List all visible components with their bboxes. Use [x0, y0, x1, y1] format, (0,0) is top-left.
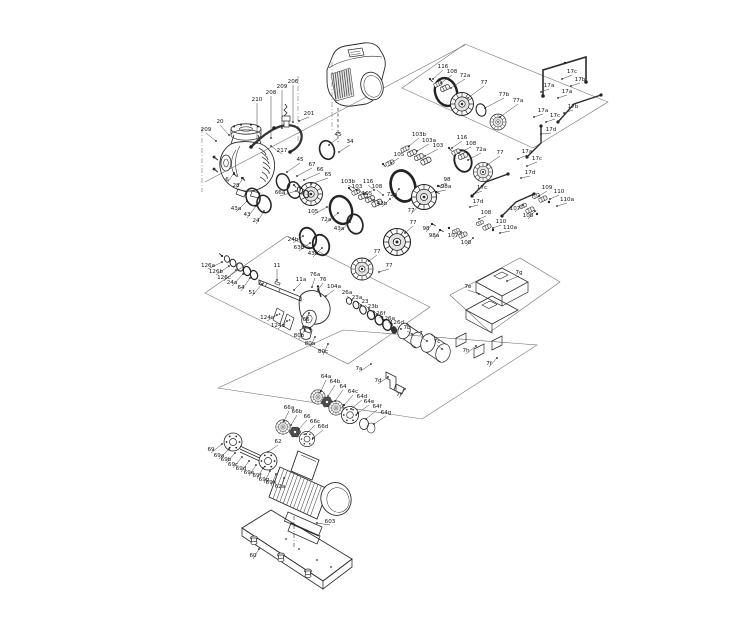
leader-line	[479, 216, 486, 219]
leader-line	[425, 149, 438, 156]
leader-dot	[557, 97, 559, 99]
part-label: 72a	[460, 73, 471, 79]
leader-dot	[357, 412, 359, 414]
part-label: 43a	[334, 226, 345, 232]
part-label: 17c	[477, 185, 487, 191]
leader-line	[541, 133, 551, 134]
leader-dot	[258, 548, 260, 550]
leader-line	[493, 225, 501, 228]
leader-dot	[492, 227, 494, 229]
leader-dot	[310, 183, 312, 185]
leader-line	[487, 156, 500, 165]
leader-line	[268, 445, 278, 452]
leader-line	[220, 125, 229, 135]
leader-dot	[475, 345, 477, 347]
part-label: 66a	[275, 190, 286, 196]
part-label: 126d	[390, 320, 405, 326]
chassis-parts	[456, 268, 528, 358]
leader-dot	[276, 279, 278, 281]
leader-line	[534, 114, 543, 117]
part-label: 77	[373, 249, 381, 255]
leader-line	[468, 86, 484, 98]
leader-dot	[556, 205, 558, 207]
leader-dot	[248, 460, 250, 462]
part-label: 17b	[568, 104, 579, 110]
leader-line	[311, 178, 328, 184]
part-label: 80b	[294, 333, 305, 339]
part-label: 26a	[342, 290, 353, 296]
leader-dot	[441, 348, 443, 350]
part-label: 107	[510, 206, 521, 212]
part-label: 108	[372, 184, 383, 190]
leader-dot	[432, 78, 434, 80]
leader-dot	[302, 235, 304, 237]
leader-dot	[373, 199, 375, 201]
part-label: 98	[422, 226, 430, 232]
leader-line	[287, 163, 300, 172]
leader-line	[312, 278, 315, 287]
part-label: 206	[288, 79, 299, 85]
leader-dot	[343, 404, 345, 406]
leader-dot	[389, 198, 391, 200]
leader-dot	[256, 142, 258, 144]
part-label: 67	[308, 162, 316, 168]
part-label: 17a	[562, 89, 573, 95]
leader-dot	[241, 456, 243, 458]
part-label: 7a	[356, 366, 363, 372]
leader-dot	[334, 400, 336, 402]
leader-dot	[540, 133, 542, 135]
leader-dot	[419, 203, 421, 205]
leader-line	[521, 176, 530, 178]
part-label: 105	[362, 191, 373, 197]
leader-dot	[540, 91, 542, 93]
leader-dot	[255, 464, 257, 466]
leader-dot	[296, 175, 298, 177]
leader-line	[436, 190, 446, 192]
part-label: 62a	[275, 484, 286, 490]
leader-dot	[337, 212, 339, 214]
valve-spring	[284, 104, 287, 116]
leader-dot	[325, 295, 327, 297]
part-label: 45	[296, 157, 304, 163]
part-label: 76	[319, 277, 327, 283]
part-label: 17a	[544, 83, 555, 89]
part-label: 28	[232, 183, 240, 189]
leader-dot	[275, 473, 277, 475]
leader-dot	[533, 116, 535, 118]
leader-dot	[276, 314, 278, 316]
leader-dot	[440, 82, 442, 84]
leader-dot	[400, 328, 402, 330]
leader-dot	[233, 172, 235, 174]
leader-dot	[496, 357, 498, 359]
leader-dot	[312, 437, 314, 439]
seal-stacks	[293, 78, 469, 232]
part-label: 72a	[387, 192, 398, 198]
leader-line	[291, 415, 297, 425]
part-label: 110	[554, 189, 565, 195]
part-label: 72a	[321, 217, 332, 223]
motor-foot-bracket	[285, 512, 323, 544]
part-label: 66	[302, 317, 310, 323]
leader-line	[374, 416, 386, 424]
exploded-parts-diagram: 2092021020820920620121762866a45344567666…	[0, 0, 752, 632]
part-label: 98a	[441, 184, 452, 190]
leader-dot	[437, 185, 439, 187]
part-label: 80c	[318, 349, 328, 355]
part-label: 7b	[403, 325, 411, 331]
leader-dot	[526, 165, 528, 167]
leader-dot	[473, 193, 475, 195]
leader-line	[470, 205, 478, 207]
part-label: 98	[443, 177, 451, 183]
part-label: 11	[273, 263, 281, 269]
leader-dot	[267, 451, 269, 453]
diagram-svg: 2092021020820920620121762866a45344567666…	[0, 0, 752, 632]
part-label: 124c	[260, 315, 274, 321]
leader-dot	[435, 191, 437, 193]
leader-dot	[478, 293, 480, 295]
leader-line	[339, 145, 350, 152]
part-label: 17c	[550, 113, 560, 119]
leader-line	[313, 430, 323, 438]
part-label: 210	[252, 97, 263, 103]
leader-dot	[228, 265, 230, 267]
part-label: 209	[201, 127, 212, 133]
part-label: 77a	[513, 98, 524, 104]
part-label: 24b	[288, 237, 299, 243]
leader-dot	[439, 229, 441, 231]
leader-dot	[262, 467, 264, 469]
leader-dot	[298, 428, 300, 430]
leader-dot	[451, 147, 453, 149]
leader-dot	[283, 477, 285, 479]
leader-line	[546, 119, 555, 122]
volute-ribs	[259, 148, 270, 182]
part-label: 103	[352, 184, 363, 190]
leader-line	[379, 269, 389, 272]
leader-dot	[486, 164, 488, 166]
leader-dot	[320, 390, 322, 392]
leader-dot	[387, 376, 389, 378]
leader-line	[500, 104, 518, 117]
leader-dot	[416, 150, 418, 152]
part-label: 7e	[464, 284, 472, 290]
seal-carrier-discs	[300, 93, 507, 281]
leader-dot	[326, 206, 328, 208]
leader-dot	[309, 242, 311, 244]
part-label: 6	[225, 177, 229, 183]
part-label: 43b	[377, 201, 388, 207]
leader-dot	[321, 247, 323, 249]
leader-dot	[263, 210, 265, 212]
leader-dot	[365, 418, 367, 420]
terminal-box	[291, 451, 319, 480]
leader-dot	[304, 329, 306, 331]
leader-dot	[563, 112, 565, 114]
part-label: 77	[480, 80, 488, 86]
support-bracket	[386, 372, 404, 394]
part-label: 201	[304, 111, 315, 117]
leader-dot	[370, 363, 372, 365]
leader-dot	[506, 280, 508, 282]
part-label: 108	[523, 213, 534, 219]
leader-dot	[408, 145, 410, 147]
leader-line	[550, 195, 559, 199]
leader-line	[321, 380, 326, 391]
leader-dot	[382, 194, 384, 196]
part-label: 72a	[476, 147, 487, 153]
part-label: 17c	[567, 69, 577, 75]
leader-dot	[317, 289, 319, 291]
leader-dot	[499, 116, 501, 118]
part-label: 108	[461, 240, 472, 246]
leader-dot	[534, 210, 536, 212]
part-label: 43a	[231, 206, 242, 212]
leader-dot	[228, 134, 230, 136]
leader-line	[284, 411, 289, 421]
part-label: 17c	[532, 156, 542, 162]
part-label: 34	[346, 139, 354, 145]
leader-dot	[411, 333, 413, 335]
leader-dot	[255, 205, 257, 207]
part-label: 107	[448, 233, 459, 239]
part-label: 80a	[305, 341, 316, 347]
leader-dot	[404, 232, 406, 234]
leader-line	[468, 290, 479, 294]
part-label: 66	[316, 167, 324, 173]
shaft-key	[275, 281, 280, 285]
leader-dot	[221, 443, 223, 445]
part-label: 108	[481, 210, 492, 216]
leader-dot	[426, 340, 428, 342]
part-label: 63b	[294, 245, 305, 251]
motor-control-unit	[327, 43, 386, 142]
leader-line	[206, 133, 216, 141]
part-label: 7f	[396, 392, 403, 398]
part-label: 7h	[462, 348, 470, 354]
leader-dot	[478, 218, 480, 220]
leader-line	[299, 420, 307, 429]
leader-dot	[235, 269, 237, 271]
part-label: 77	[385, 263, 393, 269]
part-label: 7c	[434, 339, 441, 345]
pipe-fittings	[448, 193, 550, 239]
part-label: 77b	[499, 92, 510, 98]
leader-line	[294, 283, 301, 290]
part-label: 65	[324, 172, 332, 178]
leader-dot	[450, 87, 452, 89]
leader-dot	[538, 195, 540, 197]
leader-line	[571, 83, 580, 86]
leader-dot	[328, 144, 330, 146]
leader-line	[557, 203, 567, 206]
leader-line	[507, 276, 519, 281]
leader-dot	[484, 107, 486, 109]
leader-dot	[215, 140, 217, 142]
part-label: 20	[216, 119, 224, 125]
leader-line	[351, 400, 362, 409]
part-label: 17d	[525, 170, 536, 176]
part-label: 104a	[327, 284, 341, 290]
leader-dot	[522, 204, 524, 206]
part-label: 217	[277, 148, 288, 154]
leader-line	[326, 290, 334, 296]
leader-dot	[472, 237, 474, 239]
leader-dot	[303, 179, 305, 181]
leader-dot	[378, 271, 380, 273]
leader-line	[299, 117, 309, 121]
base-feet	[251, 536, 312, 578]
leader-dot	[327, 343, 329, 345]
leader-line	[558, 95, 567, 98]
leader-dot	[286, 320, 288, 322]
leader-dot	[249, 277, 251, 279]
part-label: 124d	[271, 323, 286, 329]
part-label: 105	[308, 209, 319, 215]
part-label: 51	[248, 290, 256, 296]
leader-line	[539, 191, 547, 196]
part-label: 66d	[318, 424, 329, 430]
leader-line	[452, 141, 462, 148]
part-label: 66b	[292, 409, 303, 415]
part-label: 17d	[473, 199, 484, 205]
leader-line	[377, 190, 383, 195]
leader-dot	[368, 260, 370, 262]
part-label: 77	[496, 150, 504, 156]
leader-dot	[311, 286, 313, 288]
leader-dot	[295, 190, 297, 192]
leader-dot	[431, 223, 433, 225]
leader-dot	[350, 408, 352, 410]
part-label: 17d	[546, 127, 557, 133]
leader-dot	[517, 158, 519, 160]
leader-dot	[290, 424, 292, 426]
part-label: 103	[433, 143, 444, 149]
leader-line	[358, 405, 369, 413]
part-label: 45	[334, 132, 342, 138]
part-label: 11a	[296, 277, 307, 283]
leader-dot	[270, 137, 272, 139]
part-label: 17a	[538, 108, 549, 114]
leader-dot	[242, 273, 244, 275]
leader-dot	[283, 420, 285, 422]
leader-dot	[549, 198, 551, 200]
leader-line	[369, 255, 377, 261]
leader-dot	[469, 206, 471, 208]
part-label: 64	[237, 285, 245, 291]
part-label: 109	[542, 185, 553, 191]
motor	[269, 451, 355, 544]
leader-dot	[286, 171, 288, 173]
part-label: 7d	[374, 378, 382, 384]
leader-dot	[242, 177, 244, 179]
leader-dot	[424, 155, 426, 157]
leader-dot	[349, 221, 351, 223]
leader-dot	[270, 145, 272, 147]
part-label: 603	[325, 519, 336, 525]
leader-line	[500, 231, 510, 233]
leader-dot	[261, 283, 263, 285]
leader-line	[297, 168, 312, 176]
leader-line	[527, 162, 537, 166]
leader-dot	[305, 433, 307, 435]
part-label: 110a	[560, 197, 574, 203]
leader-dot	[398, 188, 400, 190]
leader-dot	[246, 200, 248, 202]
leader-line	[417, 144, 429, 151]
part-label: 64	[339, 384, 347, 390]
leader-dot	[404, 388, 406, 390]
leader-dot	[281, 127, 283, 129]
part-label: 23b	[368, 304, 379, 310]
leader-dot	[570, 85, 572, 87]
leader-dot	[308, 312, 310, 314]
leader-dot	[292, 121, 294, 123]
part-label: 98a	[429, 233, 440, 239]
leader-dot	[228, 448, 230, 450]
part-label: 77	[407, 208, 415, 214]
part-label: 60	[249, 553, 257, 559]
leader-dot	[467, 159, 469, 161]
leader-line	[562, 75, 572, 79]
leader-dot	[373, 423, 375, 425]
leader-dot	[234, 452, 236, 454]
leader-dot	[520, 177, 522, 179]
part-label: 110a	[503, 225, 517, 231]
leader-line	[409, 138, 419, 146]
part-label: 43	[243, 212, 251, 218]
part-label: 43b	[308, 251, 319, 257]
part-label: 17b	[575, 77, 586, 83]
part-label: 209	[277, 84, 288, 90]
leader-dot	[338, 151, 340, 153]
leader-line	[335, 390, 343, 401]
coupling-row-middle	[276, 420, 315, 447]
part-label: 62	[274, 439, 281, 445]
leader-dot	[499, 232, 501, 234]
leader-line	[405, 226, 413, 233]
shaft-assembly	[218, 253, 452, 394]
leader-dot	[561, 78, 563, 80]
part-label: 64g	[381, 410, 392, 416]
motor-fins	[273, 469, 321, 516]
leader-dot	[269, 470, 271, 472]
leader-line	[344, 395, 353, 405]
leader-line	[328, 385, 335, 396]
leader-line	[485, 98, 504, 108]
leader-dot	[327, 395, 329, 397]
leader-dot	[467, 97, 469, 99]
part-label: 208	[266, 90, 277, 96]
leader-dot	[316, 522, 318, 524]
leader-dot	[314, 336, 316, 338]
part-label: 7g	[515, 270, 523, 276]
part-label: 105	[394, 152, 405, 158]
leader-line	[304, 173, 320, 180]
part-label: 108	[447, 69, 458, 75]
part-label: 24a	[227, 280, 238, 286]
leader-dot	[298, 120, 300, 122]
leader-dot	[545, 121, 547, 123]
leader-dot	[460, 231, 462, 233]
leader-dot	[390, 162, 392, 164]
leader-dot	[221, 261, 223, 263]
part-label: 24	[252, 218, 260, 224]
part-label: 17a	[522, 149, 533, 155]
leader-dot	[293, 289, 295, 291]
